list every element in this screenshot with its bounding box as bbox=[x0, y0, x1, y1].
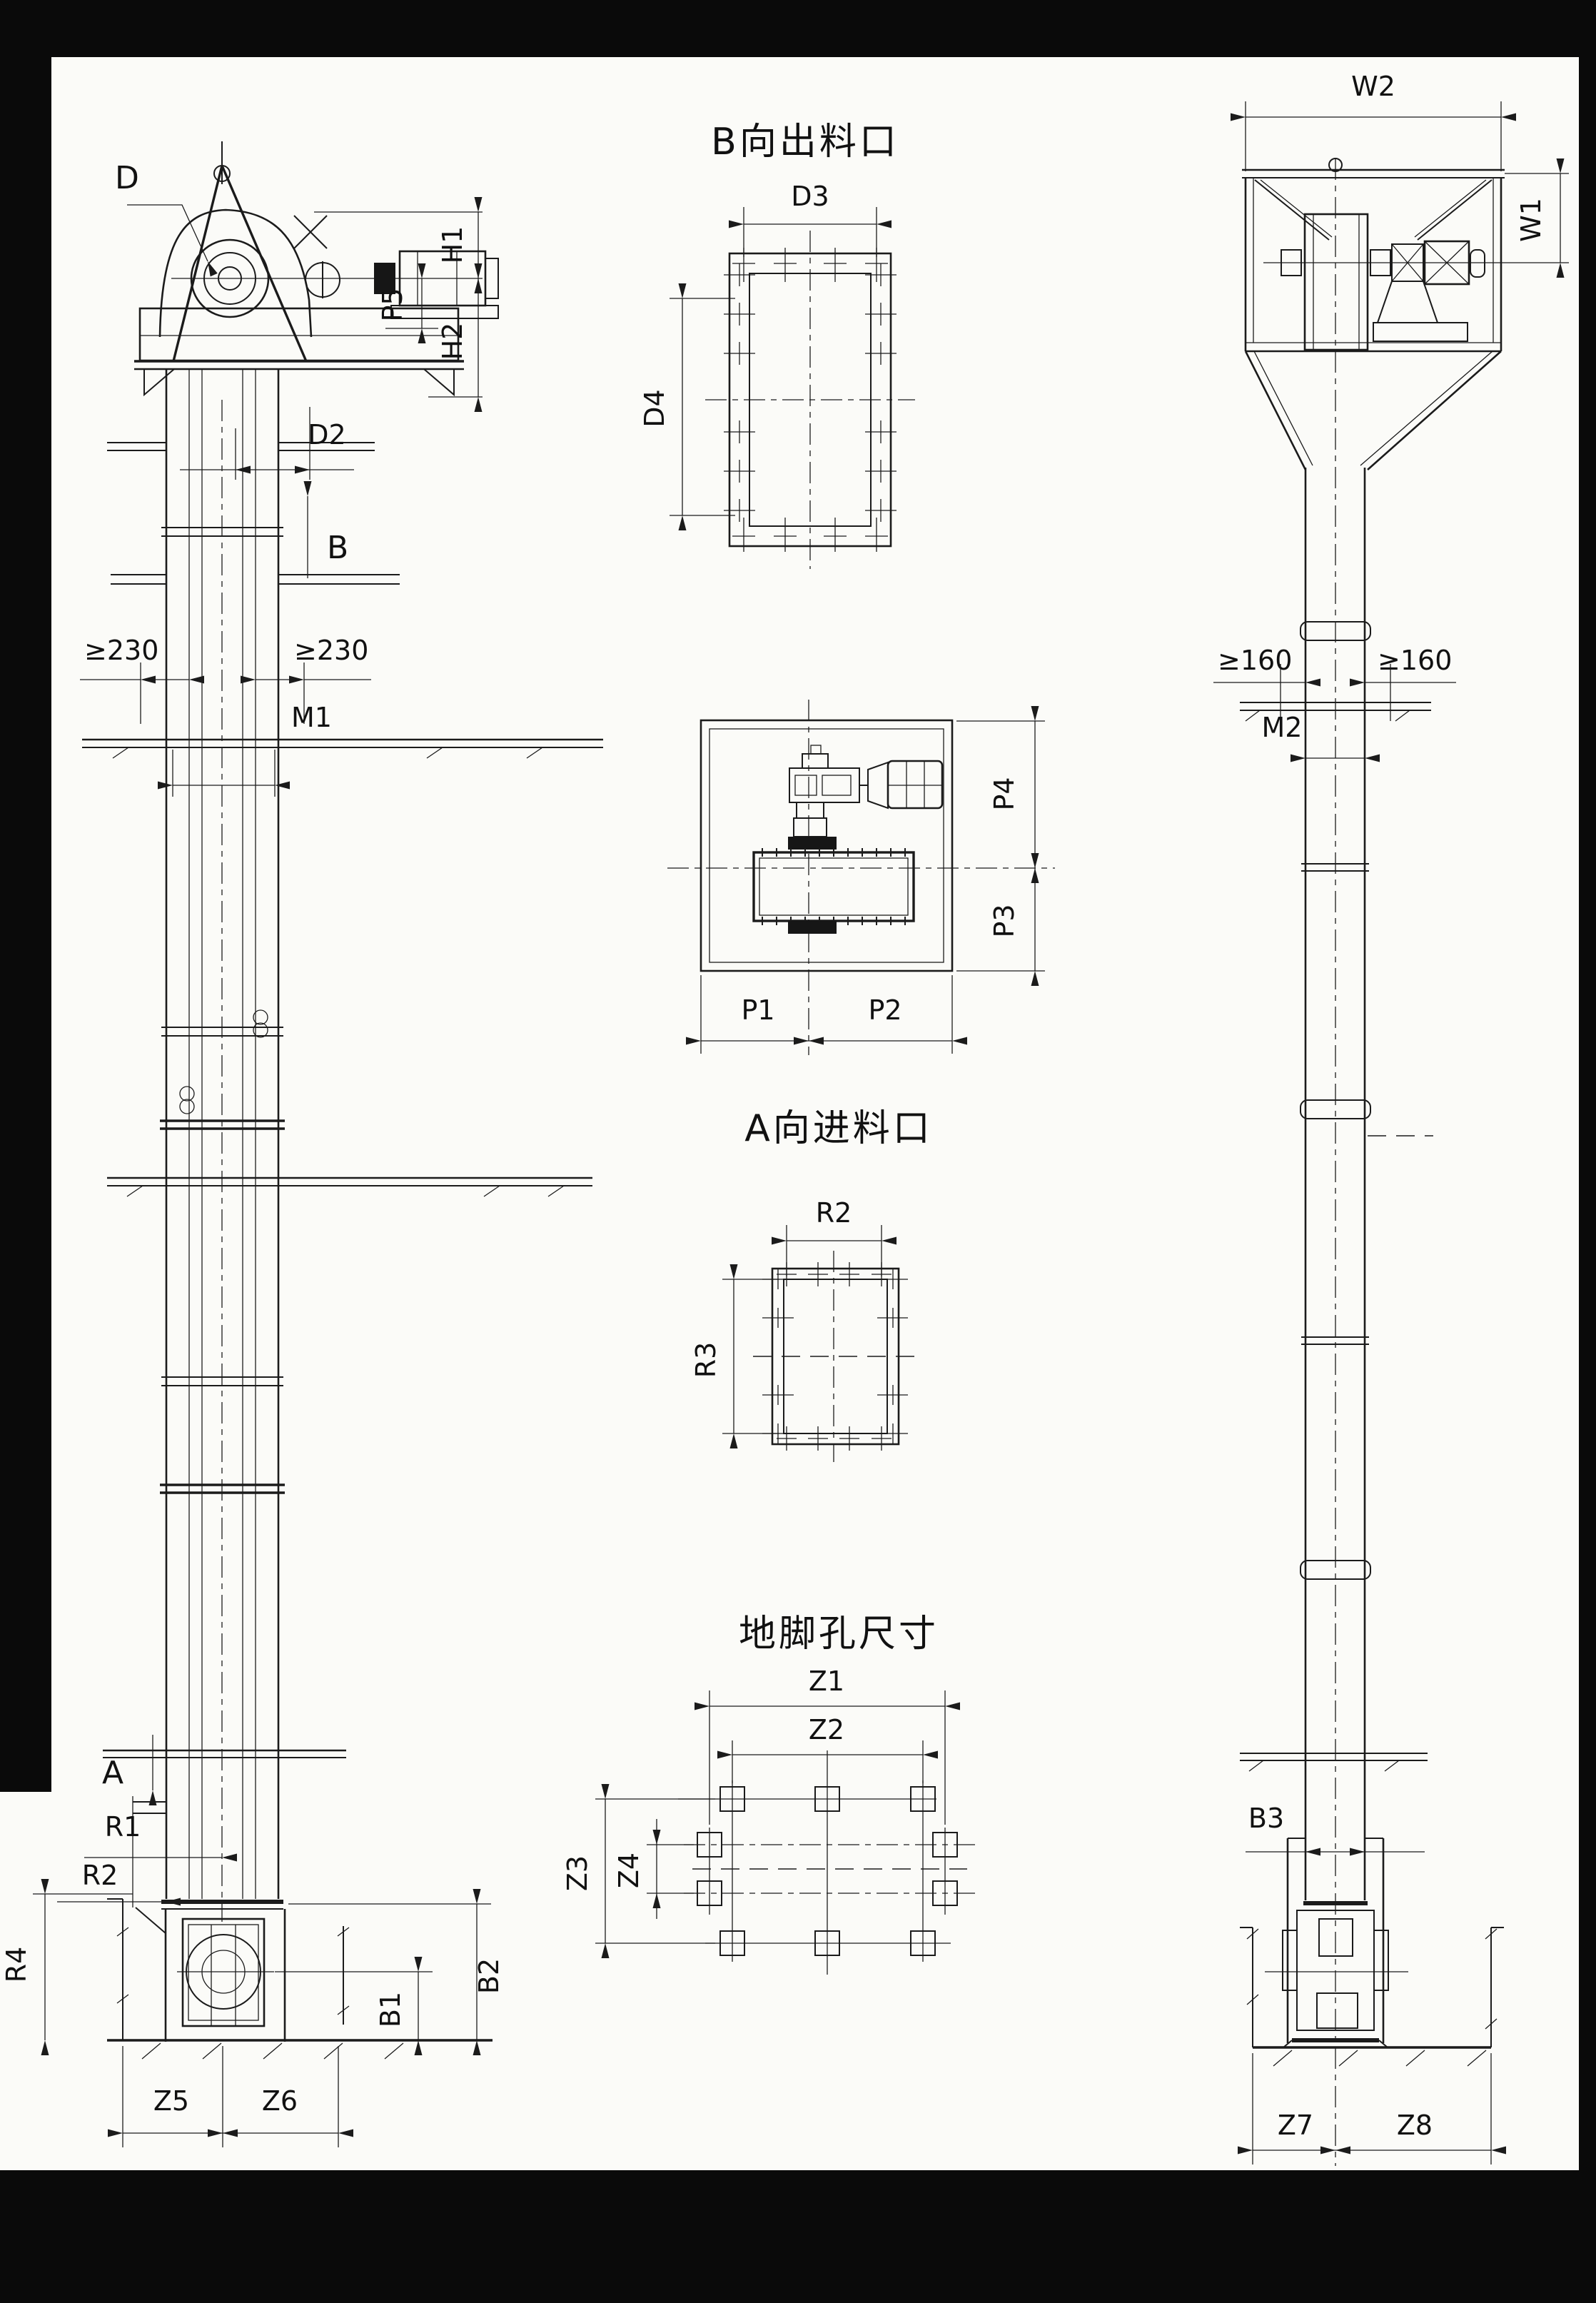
label-z6: Z6 bbox=[262, 2085, 298, 2117]
label-z1: Z1 bbox=[809, 1665, 844, 1697]
label-w2: W2 bbox=[1351, 71, 1395, 102]
label-m2: M2 bbox=[1262, 712, 1303, 743]
front-casing bbox=[82, 369, 603, 1922]
drive-unit-machinery bbox=[754, 745, 942, 934]
title-inlet: A向进料口 bbox=[744, 1107, 933, 1150]
label-p3: P3 bbox=[989, 904, 1020, 937]
scanned-drawing-page: H1 H2 P5 D D2 bbox=[0, 0, 1596, 2303]
anchor-hole-plan: 地脚孔尺寸 Z1 Z2 Z3 bbox=[562, 1613, 976, 1975]
boot-assembly: A R1 R2 R4 bbox=[1, 1735, 505, 2147]
label-r2: R2 bbox=[82, 1860, 118, 1891]
label-z7: Z7 bbox=[1278, 2110, 1313, 2141]
title-discharge: B向出料口 bbox=[711, 121, 899, 163]
label-p2: P2 bbox=[868, 994, 901, 1026]
label-r4: R4 bbox=[1, 1947, 32, 1983]
discharge-port-view: B向出料口 D3 D4 bbox=[639, 121, 915, 569]
title-anchor: 地脚孔尺寸 bbox=[739, 1613, 939, 1656]
label-b2: B2 bbox=[473, 1958, 505, 1994]
drive-unit-plan-view: P4 P3 P1 P2 bbox=[667, 700, 1055, 1055]
front-view: H1 H2 P5 D D2 bbox=[1, 141, 603, 2147]
side-casing bbox=[1240, 158, 1433, 2166]
label-z3: Z3 bbox=[562, 1855, 593, 1891]
side-w1-dimension: W1 bbox=[1515, 173, 1560, 263]
label-inlet-r2: R2 bbox=[816, 1197, 852, 1229]
side-dimensions-middle: ≥160 ≥160 M2 bbox=[1213, 645, 1456, 758]
label-m1: M1 bbox=[291, 702, 332, 733]
label-z8: Z8 bbox=[1397, 2110, 1433, 2141]
label-inlet-r3: R3 bbox=[690, 1342, 722, 1379]
label-z4: Z4 bbox=[613, 1853, 645, 1888]
label-b-arrow: B bbox=[327, 530, 348, 566]
label-clearance-right: ≥230 bbox=[294, 635, 368, 666]
label-clearance160-left: ≥160 bbox=[1218, 645, 1292, 676]
label-d3: D3 bbox=[791, 181, 829, 212]
label-h1: H1 bbox=[437, 226, 468, 264]
label-r1: R1 bbox=[105, 1811, 141, 1843]
label-h2: H2 bbox=[437, 323, 468, 361]
side-boot-assembly: B3 Z7 Z8 bbox=[1240, 1803, 1504, 2165]
label-p1: P1 bbox=[741, 994, 774, 1026]
label-w1: W1 bbox=[1515, 198, 1547, 242]
label-z2: Z2 bbox=[809, 1714, 844, 1745]
head-dimensions: H1 H2 P5 D D2 bbox=[115, 160, 483, 480]
label-p5: P5 bbox=[377, 288, 408, 321]
front-dimensions-middle: ≥230 ≥230 M1 B bbox=[80, 496, 371, 797]
label-d: D bbox=[115, 160, 139, 196]
inlet-port-view: A向进料口 R2 R3 bbox=[690, 1107, 933, 1462]
label-d2: D2 bbox=[308, 419, 345, 450]
label-p4: P4 bbox=[989, 777, 1020, 810]
side-view: W2 bbox=[1213, 71, 1569, 2166]
label-b1: B1 bbox=[375, 1992, 406, 2027]
label-b3: B3 bbox=[1248, 1803, 1284, 1834]
label-z5: Z5 bbox=[153, 2085, 189, 2117]
label-clearance-left: ≥230 bbox=[84, 635, 158, 666]
label-d4: D4 bbox=[639, 389, 670, 427]
label-clearance160-right: ≥160 bbox=[1378, 645, 1452, 676]
bucket-elevator-drawing: H1 H2 P5 D D2 bbox=[0, 0, 1596, 2303]
label-a-arrow: A bbox=[102, 1755, 123, 1791]
